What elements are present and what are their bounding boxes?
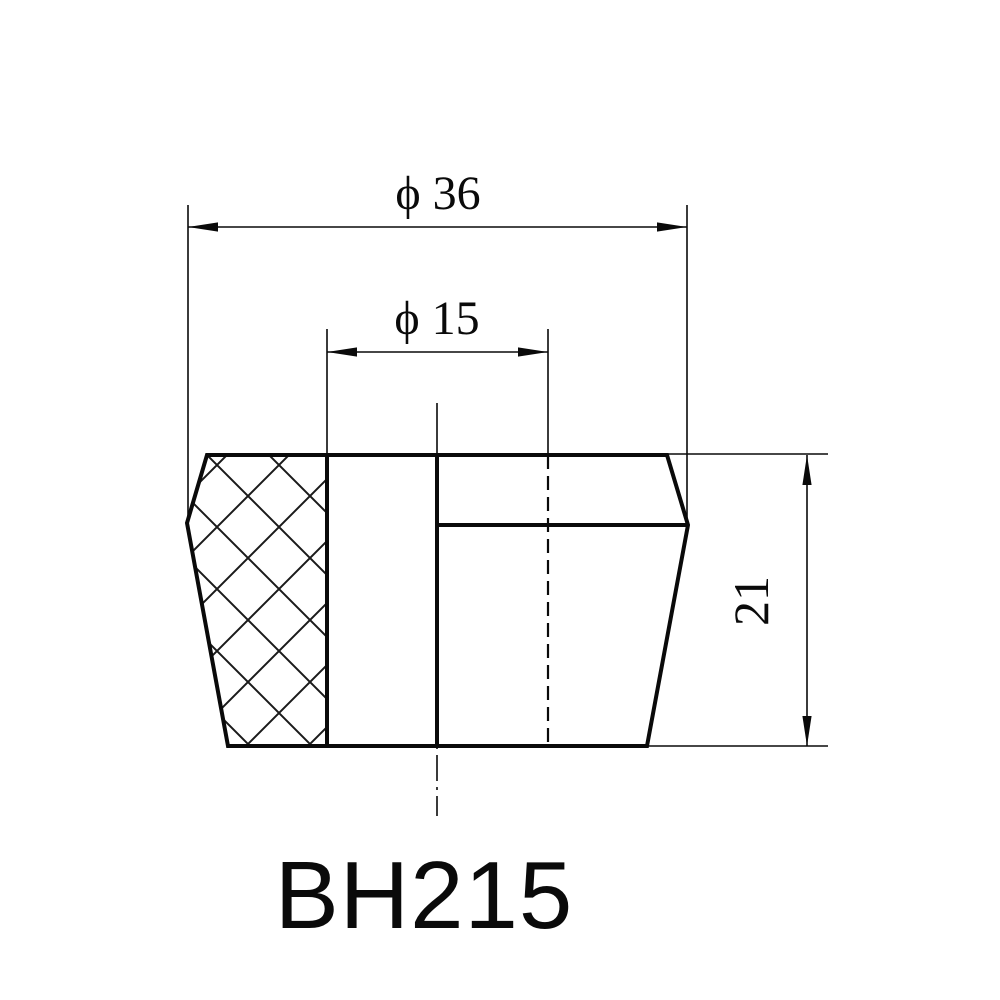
- dim-phi15-label: ϕ 15: [394, 292, 479, 345]
- drawing-canvas: ϕ 36 ϕ 15 21 BH215: [0, 0, 1000, 1000]
- dim-height-label: 21: [723, 576, 779, 626]
- technical-drawing: ϕ 36 ϕ 15 21 BH215: [0, 0, 1000, 1000]
- dim-phi36-label: ϕ 36: [395, 167, 480, 220]
- part-number-label: BH215: [275, 842, 574, 949]
